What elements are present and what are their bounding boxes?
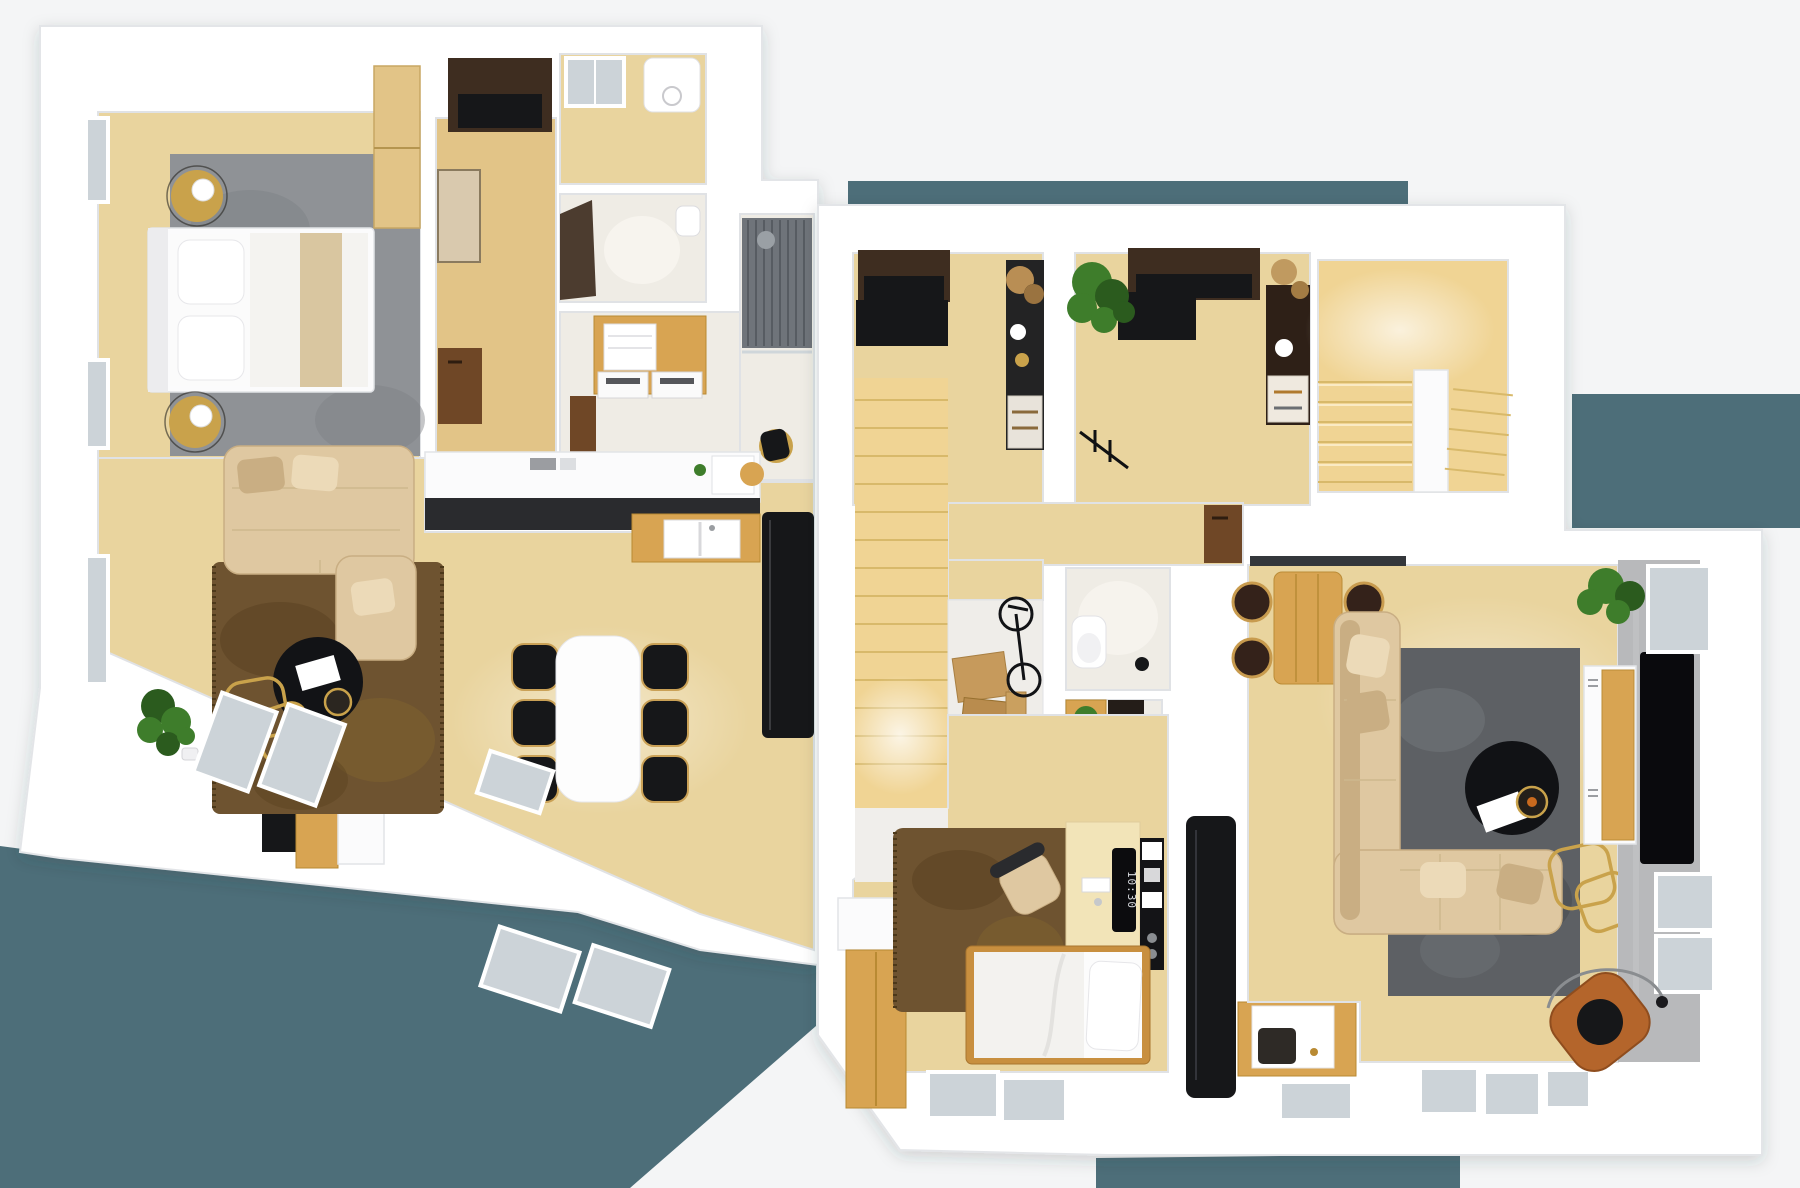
washbasin <box>676 206 700 236</box>
round-board <box>740 462 764 486</box>
candle <box>1527 797 1537 807</box>
laundry-room <box>560 312 760 472</box>
cardboard-box <box>952 652 1010 703</box>
nightstand-bottom <box>165 392 225 452</box>
water-heater <box>644 58 700 112</box>
slat-wall <box>742 218 812 348</box>
teal-strip-bottom <box>1096 1154 1460 1188</box>
bowl <box>1015 353 1029 367</box>
dryer <box>652 372 702 398</box>
rug-shading <box>315 385 425 455</box>
shower-head <box>757 231 775 249</box>
wc-door <box>560 200 596 300</box>
entry-hall-left <box>436 58 556 460</box>
tv-screen <box>1640 652 1694 864</box>
planter <box>182 748 198 760</box>
walnut-sideboard <box>1204 505 1242 563</box>
glass-floor-panel <box>1420 1068 1478 1114</box>
stair-spine-wall <box>1414 370 1448 492</box>
staircase-room <box>1305 260 1513 492</box>
mouse <box>1094 898 1102 906</box>
single-bed <box>966 946 1150 1064</box>
bedroom-left <box>86 66 425 460</box>
pillow <box>1086 961 1143 1052</box>
floor-plan-render: 10:30 <box>0 0 1800 1188</box>
wardrobe <box>374 66 420 228</box>
dining-table <box>1274 572 1342 684</box>
basin <box>1258 1028 1296 1064</box>
rug-texture <box>1395 688 1485 752</box>
pillow <box>291 454 340 492</box>
dressing-room-right <box>1067 248 1310 505</box>
bin <box>1135 657 1149 671</box>
table-lamp <box>192 179 214 201</box>
dried-flowers <box>1271 259 1297 285</box>
lamp-head <box>1656 996 1668 1008</box>
towel-drawers <box>1008 396 1042 448</box>
floor-plan-stage: 10:30 <box>0 0 1800 1188</box>
pillow <box>1345 689 1391 735</box>
faucet <box>1310 1048 1318 1056</box>
living-dining-right <box>1233 556 1714 1081</box>
glass-floor-panel <box>1484 1072 1540 1116</box>
coffee-table <box>1465 741 1559 835</box>
window <box>86 118 108 202</box>
desk: 10:30 <box>1066 822 1140 956</box>
pillow <box>1345 633 1391 679</box>
dark-wardrobe <box>448 58 552 132</box>
window <box>1656 936 1714 992</box>
window <box>86 360 108 448</box>
window <box>1648 566 1710 652</box>
double-bed <box>148 228 374 392</box>
vanity <box>1238 1002 1356 1076</box>
towel-stack <box>604 324 656 370</box>
sideboard-front <box>1602 670 1634 840</box>
dark-wardrobe <box>858 250 950 302</box>
wc-right <box>1066 568 1170 690</box>
gold-tray <box>325 689 351 715</box>
hall-floor-stub <box>948 560 1043 600</box>
towel-drawers <box>1268 376 1308 422</box>
teal-notch-right <box>1572 394 1800 528</box>
bed-runner <box>300 233 342 387</box>
skylight <box>566 58 624 106</box>
hall-floor <box>948 503 1243 565</box>
balustrade-edge <box>1250 556 1406 566</box>
washer <box>598 372 648 398</box>
duvet <box>974 952 1084 1058</box>
shower-room <box>740 214 814 480</box>
black-rug <box>856 300 948 346</box>
glass-floor-panel <box>1002 1078 1066 1122</box>
black-cabinet-column <box>1186 816 1236 1098</box>
pillow <box>178 240 244 304</box>
walnut-cabinet <box>438 348 482 424</box>
shelf-column <box>1006 260 1044 450</box>
table-lamp <box>190 405 212 427</box>
jug <box>1275 339 1293 357</box>
toilet <box>1072 616 1106 668</box>
monitor-clock: 10:30 <box>1125 871 1138 909</box>
pillow <box>350 577 396 617</box>
wc-left <box>560 194 706 302</box>
pillow <box>1420 862 1466 898</box>
kitchen-counter <box>425 452 760 502</box>
portrait-monitor: 10:30 <box>1112 848 1138 932</box>
vase <box>1010 324 1026 340</box>
dining-table <box>556 636 640 802</box>
wall-mirror <box>438 170 480 262</box>
nightstand-top <box>167 166 227 226</box>
window <box>1656 874 1714 930</box>
pillow <box>178 316 244 380</box>
utility-room <box>560 54 706 184</box>
wc-arch <box>604 216 680 284</box>
stair-glow <box>1305 268 1495 392</box>
stairs-down <box>845 378 955 808</box>
pillow <box>236 456 285 495</box>
keyboard <box>1082 878 1110 892</box>
window <box>86 556 108 684</box>
small-plant <box>694 464 706 476</box>
glass-floor-panel <box>1546 1070 1590 1108</box>
kitchen-sink <box>664 520 740 558</box>
glass-floor-panel <box>1280 1082 1352 1120</box>
stairwell-glow <box>845 675 955 795</box>
headboard <box>148 228 168 392</box>
glass-floor-panel <box>928 1072 998 1118</box>
